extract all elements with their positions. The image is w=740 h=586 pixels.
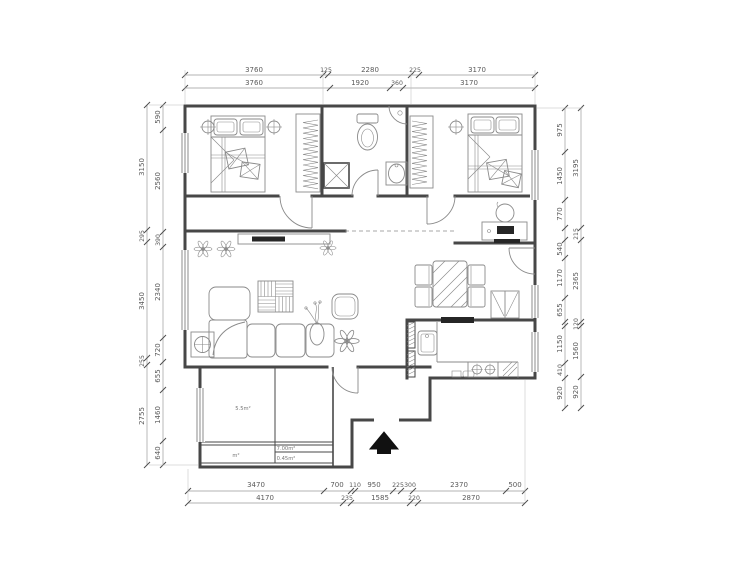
dim-label: 770: [556, 207, 564, 220]
floor-plan-canvas: 5.5m² m² 7.00m² 0.45m² 3760 125 2280 225…: [0, 0, 740, 586]
decor-vase: [305, 301, 324, 345]
dim-label: 4170: [256, 494, 274, 502]
dimension-labels-right: 975 1450 770 540 1170 655 1150 410 920 3…: [556, 123, 580, 399]
north-arrow-icon: [370, 432, 398, 454]
toilet: [357, 114, 378, 150]
dim-label: 215: [573, 228, 580, 240]
dim-label: 300: [404, 482, 416, 489]
dim-label: 360: [391, 80, 403, 87]
fridge: [491, 291, 519, 318]
balcony-area-label: 0.45m²: [277, 456, 296, 462]
window-living-west: [180, 250, 190, 330]
study-stool: [496, 202, 514, 222]
dim-label: 225: [392, 482, 404, 489]
kitchen-sink: [418, 331, 437, 355]
dim-label: 500: [508, 481, 521, 489]
balcony-area-label: 7.00m²: [277, 446, 296, 452]
dim-label: 655: [556, 303, 564, 316]
dim-label: 640: [154, 446, 162, 459]
dim-label: 295: [139, 230, 146, 242]
dim-label: 2365: [572, 272, 580, 290]
balcony-strip: [200, 367, 333, 463]
dim-label: 1560: [572, 342, 580, 360]
dim-label: 2870: [462, 494, 480, 502]
dimension-lines: [144, 72, 584, 506]
bed-bedroom1: [211, 116, 265, 192]
interior-walls: [185, 106, 535, 467]
window-room-southwest: [195, 388, 205, 442]
dim-label: 590: [154, 110, 162, 123]
window-dining-east: [530, 285, 540, 318]
dim-label: 920: [572, 385, 580, 398]
tv-console: [238, 234, 330, 244]
dim-label: 3450: [138, 292, 146, 310]
corner-hatch: [503, 362, 517, 376]
dim-label: 655: [154, 369, 162, 382]
dining-chair: [468, 287, 485, 307]
window-bedroom2-east: [530, 150, 540, 200]
dim-label: 120: [573, 318, 580, 330]
kitchen-shelf: [441, 317, 474, 323]
plant-icon: [320, 240, 336, 256]
dim-label: 975: [556, 123, 564, 136]
dim-label: 1450: [556, 167, 564, 185]
dim-label: 1585: [371, 494, 389, 502]
dim-label: 2340: [154, 283, 162, 301]
plant-icon: [194, 240, 212, 257]
kitchen-items: [452, 371, 474, 377]
dim-label: 3150: [138, 158, 146, 176]
plant-icon: [217, 240, 235, 257]
dim-label: 3170: [460, 79, 478, 87]
dimension-labels-top: 3760 125 2280 225 3170 3760 1920 360 317…: [245, 66, 486, 87]
dim-label: 110: [349, 482, 361, 489]
dim-label: 540: [556, 242, 564, 255]
bed-bedroom2: [468, 114, 522, 192]
dim-label: 720: [154, 343, 162, 356]
sofa: [209, 287, 334, 358]
floor-lamp: [191, 332, 214, 357]
dim-label: 390: [155, 234, 162, 246]
study-desk: [482, 222, 527, 243]
dim-label: 3170: [468, 66, 486, 74]
dining-chair: [415, 287, 432, 307]
wardrobe-bedroom2: [410, 116, 433, 188]
exterior-walls: [185, 106, 535, 467]
dim-label: 920: [556, 386, 564, 399]
side-table: [332, 294, 358, 319]
duct-shaft: [324, 163, 349, 188]
dim-label: 255: [139, 355, 146, 367]
dim-label: 225: [409, 67, 421, 74]
dim-label: 3760: [245, 79, 263, 87]
door-bathroom: [352, 170, 378, 196]
plant-icon: [335, 329, 359, 352]
bathroom-sink: [386, 162, 407, 185]
dim-label: 3760: [245, 66, 263, 74]
room-area-label: 5.5m²: [235, 406, 250, 412]
dining-table: [433, 261, 467, 307]
dim-label: 1150: [556, 335, 564, 353]
dining-chair: [468, 265, 485, 285]
dim-label: 2560: [154, 172, 162, 190]
dim-label: 2755: [138, 407, 146, 425]
dimension-labels-bottom: 3470 700 110 950 225 300 2370 500 4170 2…: [247, 481, 522, 502]
ceiling-lamp-icon: [266, 119, 282, 135]
dim-label: 3195: [572, 159, 580, 177]
dim-label: 1920: [351, 79, 369, 87]
dim-label: 1460: [154, 406, 162, 424]
door-bedroom1: [280, 196, 312, 228]
wardrobe-bedroom1: [296, 114, 320, 192]
dim-label: 220: [408, 495, 420, 502]
ceiling-lamp-icon: [448, 119, 464, 135]
corner-shower: [389, 106, 407, 124]
dim-label: 410: [557, 364, 564, 376]
dim-label: 700: [330, 481, 343, 489]
dim-label: 1170: [556, 269, 564, 287]
dim-label: 950: [367, 481, 380, 489]
dim-label: 2370: [450, 481, 468, 489]
dining-chair: [415, 265, 432, 285]
window-kitchen-east: [530, 332, 540, 372]
window-bedroom1-west: [180, 133, 190, 173]
balcony-area-label: m²: [232, 453, 239, 459]
dimension-labels-left: 3150 295 3450 255 2755 590 2560 390 2340…: [138, 110, 162, 459]
door-room-southwest: [332, 367, 358, 393]
area-rug: [258, 281, 293, 312]
entry-opening: [374, 415, 399, 425]
door-entry: [509, 248, 535, 274]
stove: [468, 362, 498, 377]
dim-label: 2280: [361, 66, 379, 74]
dim-label: 235: [341, 495, 353, 502]
dim-label: 125: [320, 67, 332, 74]
floor-plan-drawing: 5.5m² m² 7.00m² 0.45m² 3760 125 2280 225…: [0, 0, 740, 586]
dim-label: 3470: [247, 481, 265, 489]
door-bedroom2: [427, 196, 455, 224]
